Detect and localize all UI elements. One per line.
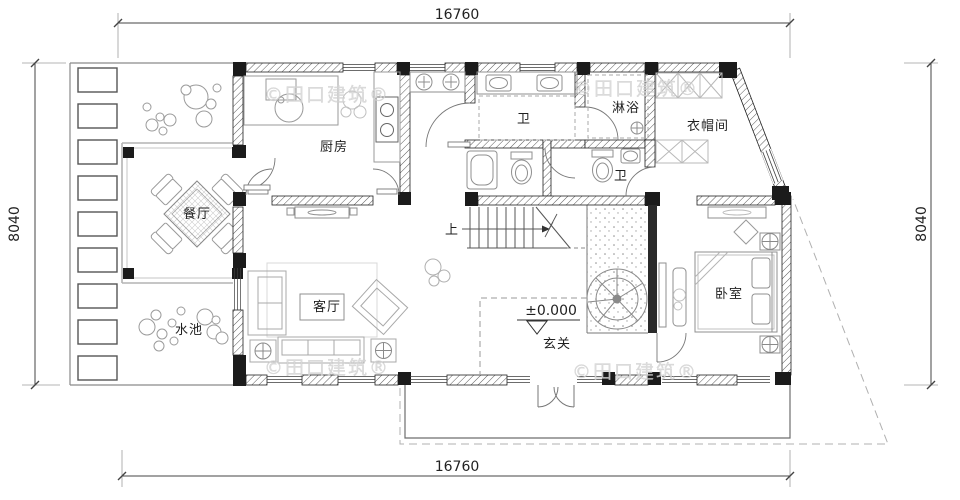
stepping-stones <box>78 68 117 380</box>
floor-plan-page: 厨房 卫 淋浴 衣帽间 卫 餐厅 水池 客厅 卧室 玄关 上 ±0.000 <box>0 0 960 500</box>
terrace-garden <box>70 63 244 385</box>
entry-door <box>538 385 574 407</box>
dim-bottom-value: 16760 <box>435 459 480 475</box>
garden-stones <box>143 84 221 135</box>
dim-left-value: 8040 <box>7 206 23 242</box>
label-cloakroom: 衣帽间 <box>687 118 729 134</box>
stairs <box>462 207 570 248</box>
elevation-value: ±0.000 <box>525 303 577 319</box>
courtyard-wall <box>648 205 657 333</box>
label-bedroom: 卧室 <box>715 286 743 302</box>
plant-icon <box>425 259 450 286</box>
label-stairs-up: 上 <box>445 223 459 238</box>
floor-plan-canvas: 厨房 卫 淋浴 衣帽间 卫 餐厅 水池 客厅 卧室 玄关 上 ±0.000 <box>0 0 960 500</box>
laundry-counter <box>410 72 465 92</box>
room-labels: 厨房 卫 淋浴 衣帽间 卫 餐厅 水池 客厅 卧室 玄关 上 ±0.000 <box>175 101 743 352</box>
living-furniture <box>248 207 408 363</box>
label-pool: 水池 <box>175 323 203 338</box>
label-living: 客厅 <box>313 299 341 315</box>
dim-right-value: 8040 <box>914 206 930 242</box>
label-shower: 淋浴 <box>612 101 640 116</box>
watermark-text: ©田口建筑® <box>573 78 699 100</box>
elevation-marker-icon <box>527 321 547 334</box>
label-bath-2: 卫 <box>614 169 628 184</box>
dimensions <box>22 13 938 487</box>
dim-top-value: 16760 <box>435 7 480 23</box>
dim-left <box>22 59 66 389</box>
label-bath-main: 卫 <box>517 112 531 127</box>
label-dining: 餐厅 <box>183 206 211 222</box>
watermark-text: ©田口建筑® <box>264 84 390 106</box>
label-kitchen: 厨房 <box>320 139 348 155</box>
watermark-text: ©田口建筑® <box>264 357 390 379</box>
watermark-text: ©田口建筑® <box>572 361 698 383</box>
label-foyer: 玄关 <box>543 337 571 352</box>
bedroom-furniture <box>659 207 780 353</box>
light-well-courtyard <box>567 205 648 333</box>
tree-icon <box>587 269 647 329</box>
slant-window <box>761 149 783 185</box>
windows <box>235 65 771 383</box>
